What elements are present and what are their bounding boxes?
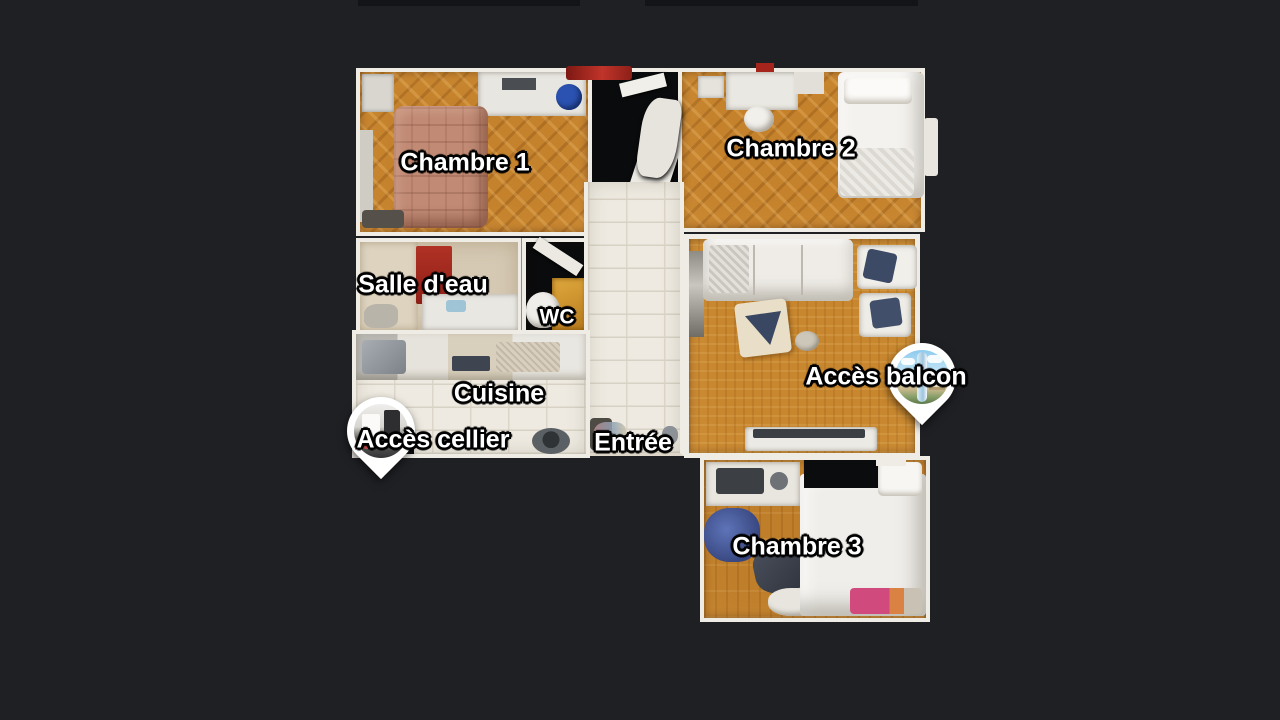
- sofa-cushion: [709, 245, 749, 293]
- sink-counter: [422, 294, 518, 330]
- label-cuisine: Cuisine: [454, 382, 544, 407]
- label-chambre-2: Chambre 2: [726, 137, 855, 162]
- side-table: [698, 76, 724, 98]
- tv-bench-top: [753, 429, 865, 438]
- printer: [716, 468, 764, 494]
- sideboard: [689, 251, 704, 337]
- wall-notch: [876, 456, 906, 466]
- pillow: [844, 78, 912, 104]
- hallway-entree[interactable]: [584, 182, 684, 456]
- desk: [726, 72, 798, 110]
- dollhouse-view[interactable]: Chambre 1 Chambre 2 Salle d'eau WC Cuisi…: [0, 0, 1280, 720]
- label-wc: WC: [540, 307, 575, 328]
- open-door-leaf: [533, 237, 584, 276]
- desk-chair: [744, 106, 774, 132]
- sofa-seam: [753, 245, 755, 295]
- radiator: [924, 118, 938, 176]
- label-acces-cellier: Accès cellier: [357, 428, 510, 453]
- label-salle-deau: Salle d'eau: [358, 273, 488, 298]
- stove: [452, 356, 490, 371]
- label-chambre-1: Chambre 1: [400, 151, 529, 176]
- desk-extension: [794, 72, 824, 94]
- shelf: [362, 74, 394, 112]
- radiator: [360, 130, 373, 222]
- bed-headboard-gap: [804, 460, 878, 488]
- laundry-pile: [364, 304, 398, 328]
- pink-blanket: [850, 588, 922, 614]
- sink-basin: [446, 300, 466, 312]
- appliance: [362, 340, 406, 374]
- armchair-cushion: [862, 248, 898, 284]
- pillow: [878, 462, 922, 496]
- floor-clutter: [362, 210, 404, 228]
- armchair-cushion: [869, 297, 903, 329]
- red-bag-on-wall: [566, 66, 632, 80]
- balcony-edge-hint: [645, 0, 918, 6]
- speckled-worktop: [496, 342, 560, 372]
- balcony-edge-hint: [358, 0, 580, 6]
- label-chambre-3: Chambre 3: [732, 535, 861, 560]
- room-sejour[interactable]: [684, 234, 920, 458]
- desk-clutter: [502, 78, 536, 90]
- label-acces-balcon: Accès balcon: [805, 365, 966, 390]
- label-entree: Entrée: [594, 431, 672, 456]
- large-pot: [532, 428, 570, 454]
- red-accent: [756, 63, 774, 72]
- stool: [795, 331, 819, 351]
- desk-object: [770, 472, 788, 490]
- desk-chair: [556, 84, 582, 110]
- sofa-seam: [801, 245, 803, 295]
